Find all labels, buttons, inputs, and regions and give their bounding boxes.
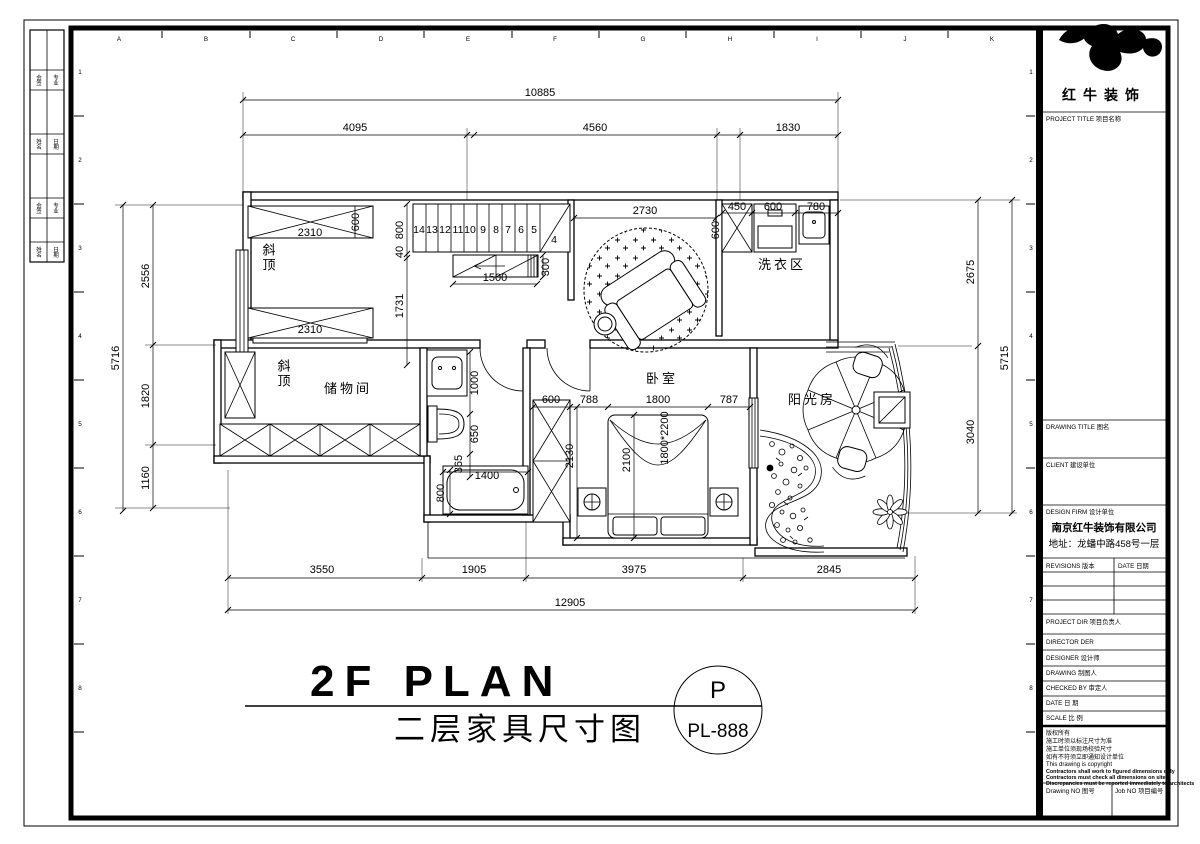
border-number: 5 xyxy=(78,421,82,428)
stair-number: 5 xyxy=(531,224,537,236)
dim: 600 xyxy=(542,394,560,406)
signoff-cell: 会签 xyxy=(35,201,42,214)
designer-label: DESIGNER 设计师 xyxy=(1046,653,1100,662)
note-line: 如有不符须立即通知设计单位 xyxy=(1046,753,1124,761)
stair-number: 8 xyxy=(493,224,499,236)
signoff-cell: 姓名 xyxy=(35,137,42,151)
signoff-strip: 会签 专业 姓名 日期 会签 专业 姓名 日期 xyxy=(30,30,64,262)
border-number: 8 xyxy=(78,685,82,692)
dim: 1800 xyxy=(646,394,670,406)
plan-title: 2F PLAN 二层家具尺寸图 P PL-888 xyxy=(245,657,762,754)
patio-table xyxy=(874,392,910,428)
border-number: 6 xyxy=(1029,509,1033,516)
storage-cabinets xyxy=(220,352,420,456)
date-label: DATE 日 期 xyxy=(1046,699,1078,707)
titleblock: 红牛装饰 PROJECT TITLE 项目名称 DRAWING TITLE 图名… xyxy=(1043,24,1194,818)
border-number: 4 xyxy=(78,333,82,340)
dim: 1731 xyxy=(394,294,406,318)
dim: 1905 xyxy=(462,564,486,576)
dim: 2730 xyxy=(633,205,657,217)
dim: 2310 xyxy=(298,324,322,336)
rev-date-label: DATE 日期 xyxy=(1118,562,1149,570)
dim: 3040 xyxy=(965,420,977,444)
drawing-by-label: DRAWING 制图人 xyxy=(1046,668,1098,677)
project-dir-label: PROJECT DIR 项目负责人 xyxy=(1046,617,1122,626)
dim-bed-size: 1800*2200 xyxy=(659,411,671,464)
dim: 650 xyxy=(469,425,481,443)
dim: 10885 xyxy=(525,87,556,99)
border-letter: G xyxy=(641,36,646,43)
note-line: 施工时须以标注尺寸为准 xyxy=(1046,737,1112,745)
signoff-cell: 会签 xyxy=(35,73,42,86)
dim: 1500 xyxy=(483,272,507,284)
dim: 600 xyxy=(710,221,722,239)
border-letter: C xyxy=(291,36,296,43)
door-bedroom xyxy=(547,348,590,391)
door-bathroom xyxy=(480,348,523,391)
signoff-cell: 专业 xyxy=(52,73,59,86)
dim: 1400 xyxy=(475,470,499,482)
room-label-storage: 储物间 xyxy=(324,381,372,396)
stair-number: 9 xyxy=(480,224,486,236)
revisions-label: REVISIONS 版本 xyxy=(1046,561,1095,570)
scale-label: SCALE 比 例 xyxy=(1046,713,1083,722)
note-line: 版权所有 xyxy=(1046,729,1070,737)
border-number: 8 xyxy=(1029,685,1033,692)
dim: 365 xyxy=(453,455,465,473)
job-no-label: Job NO 项目编号 xyxy=(1115,786,1163,795)
border-number: 4 xyxy=(1029,333,1033,340)
room-label-sunroom: 阳光房 xyxy=(788,392,836,407)
border-letter: H xyxy=(728,36,733,43)
dim: 300 xyxy=(540,258,552,276)
border-number: 2 xyxy=(78,157,82,164)
bathroom-basin xyxy=(427,350,467,396)
dim: 600 xyxy=(350,213,362,231)
border-letter: J xyxy=(903,36,906,43)
border-letter: B xyxy=(204,36,208,43)
drawing-title-label: DRAWING TITLE 图名 xyxy=(1046,422,1109,431)
project-title-label: PROJECT TITLE 项目名称 xyxy=(1046,114,1122,123)
stair-number: 4 xyxy=(551,234,557,246)
patio-chair-bottom xyxy=(831,444,872,483)
floor-plan-drawing: A B C D E F G H I J K 1 2 3 4 5 6 7 8 1 … xyxy=(0,0,1200,844)
stair-number: 14 xyxy=(413,224,425,236)
note-line: Discrepancies must be reported immediate… xyxy=(1046,781,1194,787)
firm-address: 地址：龙蟠中路458号一层 xyxy=(1049,538,1160,550)
side-table xyxy=(594,313,616,335)
dim: 2845 xyxy=(817,564,841,576)
toilet xyxy=(428,406,464,442)
border-letters: A B C D E F G H I J K xyxy=(117,36,995,43)
sheet-bubble-letter: P xyxy=(710,677,726,704)
drawing-sheet: A B C D E F G H I J K 1 2 3 4 5 6 7 8 1 … xyxy=(0,0,1200,844)
dim: 800 xyxy=(435,484,447,502)
dim: 2310 xyxy=(298,227,322,239)
sheet-frame xyxy=(24,20,1178,826)
border-letter: D xyxy=(379,36,384,43)
dim: 2675 xyxy=(965,260,977,284)
signoff-cell: 专业 xyxy=(52,201,59,214)
border-number: 3 xyxy=(1029,245,1033,252)
note-line: 施工单位须现场校验尺寸 xyxy=(1046,745,1112,753)
dim: 4560 xyxy=(583,122,607,134)
dim: 2130 xyxy=(564,444,576,468)
stair-number: 10 xyxy=(464,224,476,236)
dim: 1820 xyxy=(140,384,152,408)
note-line: This drawing is copyright xyxy=(1046,762,1112,768)
dim: 3975 xyxy=(622,564,646,576)
border-letter: E xyxy=(466,36,470,43)
room-label-sloped-top: 斜顶 xyxy=(261,243,276,273)
border-number: 7 xyxy=(78,597,82,604)
room-label-sloped-storage: 斜顶 xyxy=(276,359,291,389)
nightstand-left xyxy=(578,488,606,516)
border-number: 6 xyxy=(78,509,82,516)
stair-number: 13 xyxy=(426,224,438,236)
dim: 1160 xyxy=(140,466,152,490)
dim: 787 xyxy=(720,394,738,406)
firm-name: 南京红牛装饰有限公司 xyxy=(1052,521,1157,534)
border-letter: F xyxy=(553,36,557,43)
border-letter: I xyxy=(816,36,818,43)
dim: 1000 xyxy=(469,371,481,395)
room-label-bedroom: 卧室 xyxy=(646,371,678,386)
checked-by-label: CHECKED BY 审定人 xyxy=(1046,683,1108,692)
border-number: 1 xyxy=(78,69,82,76)
director-label: DIRECTOR DER xyxy=(1046,639,1094,646)
stair-number: 11 xyxy=(453,224,464,236)
dim: 788 xyxy=(580,394,598,406)
dim: 780 xyxy=(807,201,825,213)
signoff-cell: 姓名 xyxy=(35,245,42,259)
window-bedroom-icon xyxy=(749,398,758,468)
dim: 40 xyxy=(394,246,406,258)
window-left-icon xyxy=(236,250,248,352)
border-letter: K xyxy=(990,36,995,43)
border-number: 1 xyxy=(1029,69,1033,76)
dim: 1830 xyxy=(776,122,800,134)
border-number: 7 xyxy=(1029,597,1033,604)
dim: 5715 xyxy=(999,346,1011,370)
stair-number: 12 xyxy=(439,224,451,236)
stair-number: 7 xyxy=(505,224,511,236)
dim: 600 xyxy=(764,201,782,213)
stair-number: 6 xyxy=(518,224,524,236)
signoff-cell: 日期 xyxy=(52,138,59,151)
border-letter: A xyxy=(117,36,122,43)
border-number: 2 xyxy=(1029,157,1033,164)
nightstand-right xyxy=(710,488,738,516)
client-label: CLIENT 建设单位 xyxy=(1046,460,1096,469)
dim: 3550 xyxy=(310,564,334,576)
border-number: 3 xyxy=(78,245,82,252)
flower-bed xyxy=(760,430,824,552)
plan-title-cn: 二层家具尺寸图 xyxy=(394,712,646,747)
plan-title-en: 2F PLAN xyxy=(310,657,563,706)
bed xyxy=(608,415,708,538)
dim: 2556 xyxy=(140,264,152,288)
room-label-laundry: 洗衣区 xyxy=(758,257,806,272)
design-firm-label: DESIGN FIRM 设计单位 xyxy=(1046,507,1115,516)
dim: 5716 xyxy=(110,346,122,370)
signoff-cell: 日期 xyxy=(52,246,59,259)
flower-icon xyxy=(873,495,907,529)
dim: 800 xyxy=(394,221,406,239)
drawing-no-label: Drawing NO 图号 xyxy=(1046,787,1095,795)
company-name: 红牛装饰 xyxy=(1062,87,1146,103)
redniu-logo-icon xyxy=(1059,24,1162,71)
border-number: 5 xyxy=(1029,421,1033,428)
dim: 450 xyxy=(728,201,746,213)
dim: 2100 xyxy=(621,448,633,472)
dim: 12905 xyxy=(555,597,586,609)
dim: 4095 xyxy=(343,122,367,134)
sheet-bubble-number: PL-888 xyxy=(687,721,748,742)
